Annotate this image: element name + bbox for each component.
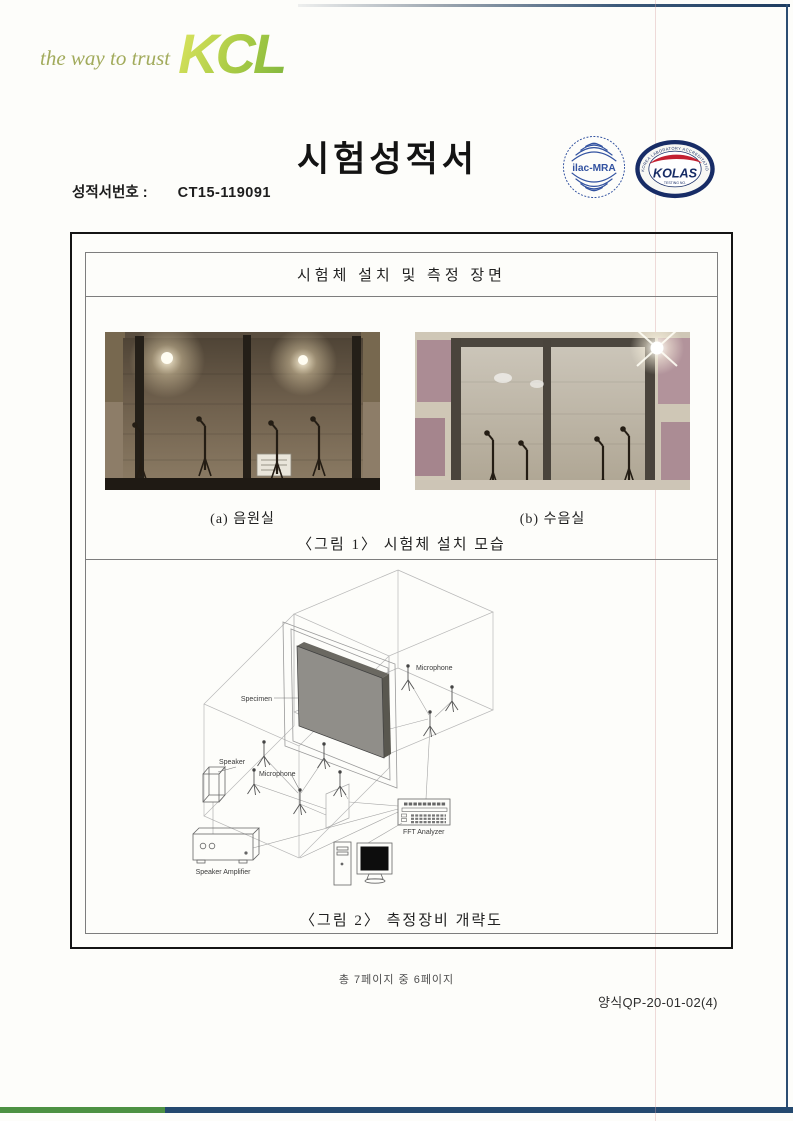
computer-tower: [334, 842, 351, 885]
speaker-box: [203, 767, 225, 802]
report-number-row: 성적서번호 : CT15-119091: [72, 181, 271, 202]
fft-analyzer-box: [398, 799, 450, 825]
kcl-logotype: KCL: [178, 26, 284, 82]
form-number: 양식QP-20-01-02(4): [598, 992, 718, 1011]
frame-post: [135, 336, 144, 480]
right-border-line: [786, 4, 788, 1110]
floor: [415, 480, 690, 490]
absorber-panel: [661, 422, 690, 480]
scanned-test-report-page: the way to trust KCL 시험성적서 성적서번호 : CT15-…: [0, 0, 793, 1121]
photo-sound-source-room: [105, 332, 380, 490]
frame-beam: [451, 338, 655, 347]
bottom-bar-green-segment: [0, 1107, 165, 1113]
content-outer-box: 시험체 설치 및 측정 장면: [70, 232, 733, 949]
ilac-mra-logo: ilac-MRA: [562, 135, 626, 199]
speaker-amplifier-label: Speaker Amplifier: [196, 869, 252, 876]
top-border-line: [298, 4, 790, 7]
speaker-amplifier-box: [193, 828, 259, 863]
frame-post: [352, 336, 361, 480]
floor: [105, 478, 380, 490]
kolas-text: KOLAS: [653, 167, 698, 181]
kcl-logo: the way to trust KCL: [40, 26, 284, 82]
microphone-tripod: [258, 740, 271, 767]
document-title: 시험성적서: [297, 131, 478, 182]
microphone-tripod: [318, 742, 331, 769]
microphone-tripod: [402, 664, 415, 691]
speaker-label: Speaker: [219, 759, 246, 766]
specimen-label: Specimen: [241, 696, 272, 703]
report-number-label: 성적서번호 :: [72, 185, 148, 201]
microphone-label-source: Microphone: [259, 771, 296, 778]
section-title: 시험체 설치 및 측정 장면: [86, 253, 717, 297]
frame-post: [243, 335, 251, 480]
report-number-value: CT15-119091: [178, 185, 271, 201]
content-inner-box: 시험체 설치 및 측정 장면: [85, 252, 718, 934]
microphone-tripod: [446, 685, 459, 712]
absorber-panel: [415, 418, 445, 476]
section-divider: [86, 559, 717, 560]
measurement-setup-diagram: Specimen Microphone Microphone Speaker S…: [86, 562, 715, 908]
ilac-mra-text: ilac-MRA: [572, 163, 616, 174]
bottom-accent-bar: [0, 1107, 793, 1113]
photo-a-caption: (a) 음원실: [105, 508, 380, 528]
microphone-label-receiving: Microphone: [416, 665, 453, 672]
photo-b-caption: (b) 수음실: [415, 508, 690, 528]
fft-analyzer-label: FFT Analyzer: [403, 829, 445, 836]
kolas-logo: KOREA LABORATORY ACCREDITATION SCHEME KO…: [630, 138, 720, 200]
kolas-sub-text: TESTING NO.: [664, 181, 686, 185]
specimen-panel: [297, 642, 391, 758]
absorber-panel: [417, 340, 451, 402]
microphone-tripod: [334, 770, 347, 797]
photo-receiving-room: [415, 332, 690, 490]
bottom-bar-navy-segment: [165, 1107, 793, 1113]
page-number-info: 총 7페이지 중 6페이지: [0, 971, 793, 987]
frame-post: [451, 338, 461, 480]
frame-post: [543, 340, 551, 480]
kcl-tagline: the way to trust: [40, 46, 170, 71]
specimen-wall: [451, 338, 655, 480]
figure2-caption: 〈그림 2〉 측정장비 개략도: [86, 909, 717, 930]
computer-monitor: [357, 843, 392, 883]
figure1-caption: 〈그림 1〉 시험체 설치 모습: [86, 533, 717, 554]
